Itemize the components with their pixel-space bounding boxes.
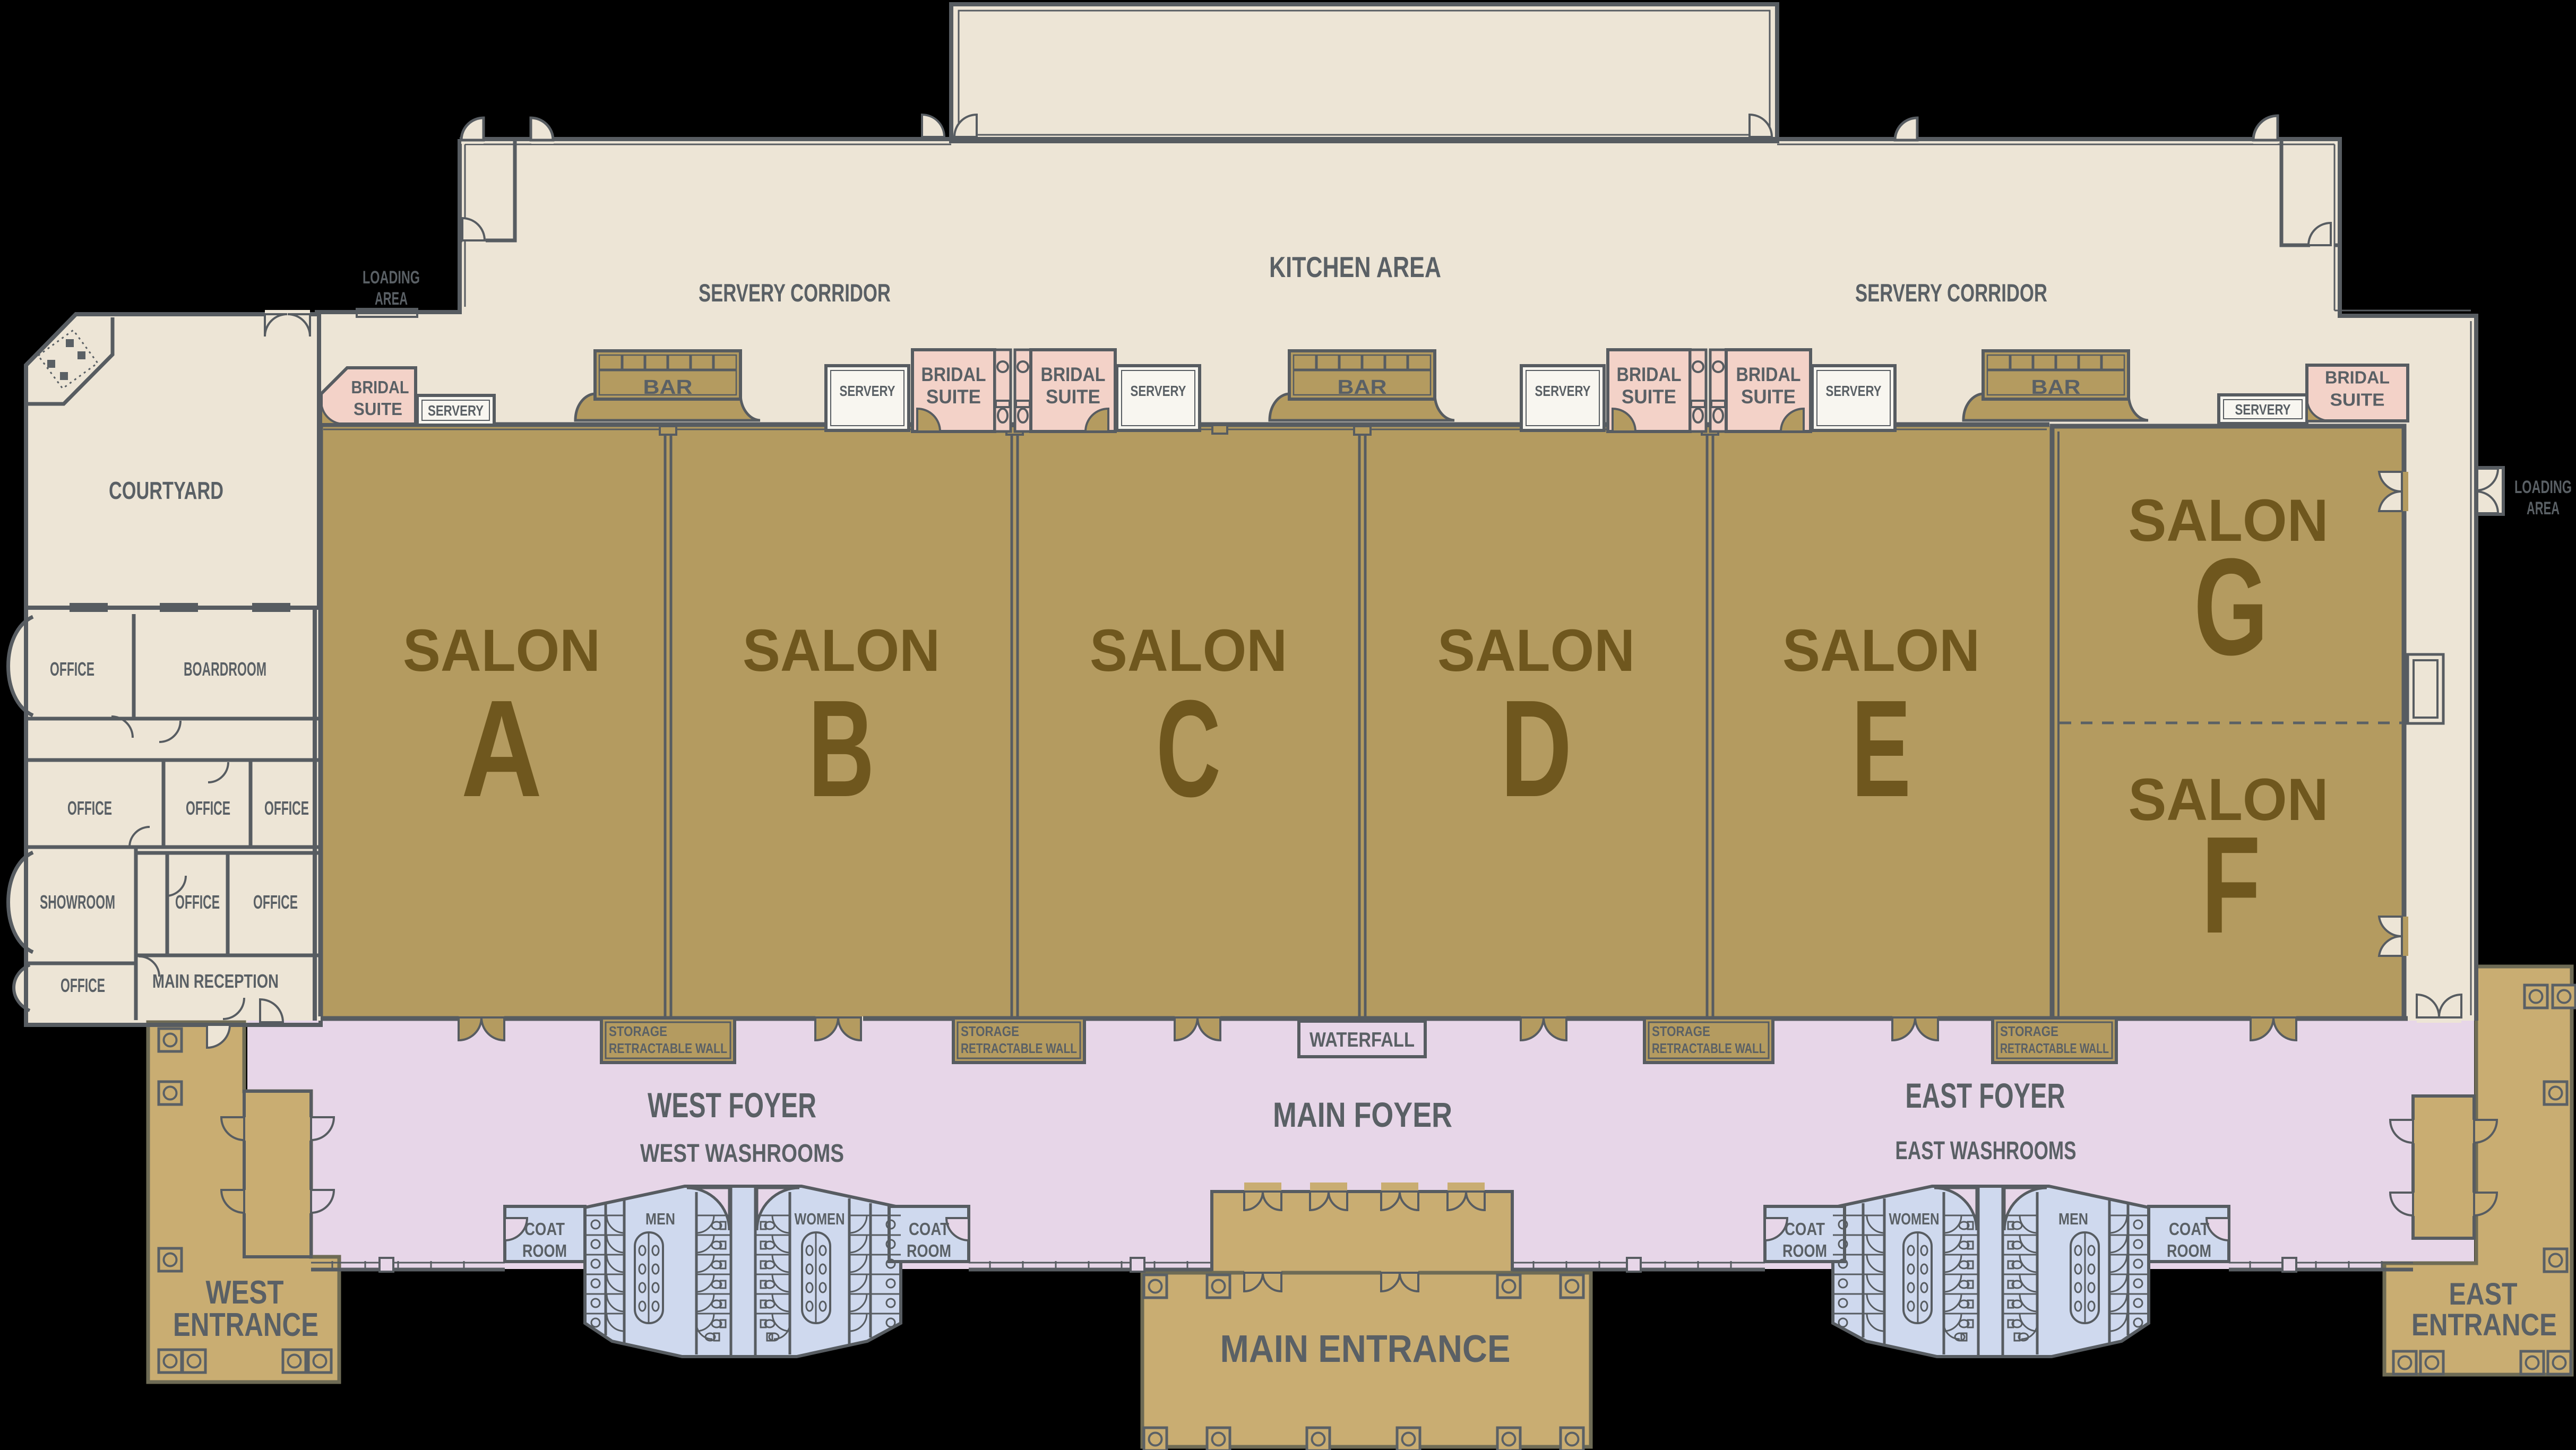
svg-text:BAR: BAR [1338,376,1387,399]
svg-text:SERVERY: SERVERY [2235,401,2291,418]
svg-text:BAR: BAR [2031,376,2081,399]
svg-text:ROOM: ROOM [1782,1241,1827,1261]
svg-text:BRIDAL: BRIDAL [351,377,409,397]
svg-text:SUITE: SUITE [1622,386,1676,408]
svg-text:BRIDAL: BRIDAL [2325,368,2390,387]
svg-text:F: F [2201,808,2261,962]
svg-text:STORAGE: STORAGE [1652,1023,1710,1039]
svg-text:RETRACTABLE WALL: RETRACTABLE WALL [609,1040,727,1056]
svg-text:MEN: MEN [645,1210,675,1228]
svg-text:EAST WASHROOMS: EAST WASHROOMS [1896,1137,2077,1165]
svg-text:STORAGE: STORAGE [2000,1023,2058,1039]
svg-text:ROOM: ROOM [907,1241,951,1261]
svg-text:SERVERY CORRIDOR: SERVERY CORRIDOR [1855,279,2047,307]
svg-text:SUITE: SUITE [1046,386,1100,408]
svg-text:AREA: AREA [2527,498,2560,519]
svg-text:BRIDAL: BRIDAL [1736,364,1801,385]
svg-text:COURTYARD: COURTYARD [109,477,223,504]
svg-text:EAST FOYER: EAST FOYER [1906,1076,2065,1115]
svg-text:SERVERY: SERVERY [1826,383,1882,399]
svg-text:SERVERY: SERVERY [1535,383,1591,399]
svg-text:E: E [1851,672,1911,826]
svg-text:BRIDAL: BRIDAL [1041,364,1106,385]
svg-text:ENTRANCE: ENTRANCE [173,1307,318,1343]
svg-text:SERVERY: SERVERY [1131,383,1186,399]
svg-text:BRIDAL: BRIDAL [921,364,986,385]
svg-text:WEST FOYER: WEST FOYER [648,1085,816,1125]
svg-text:OFFICE: OFFICE [175,891,220,913]
svg-text:BAR: BAR [643,376,693,399]
svg-text:LOADING: LOADING [2514,477,2572,497]
svg-text:OFFICE: OFFICE [61,974,105,996]
svg-text:WATERFALL: WATERFALL [1309,1029,1415,1051]
svg-text:WEST WASHROOMS: WEST WASHROOMS [640,1140,844,1168]
svg-text:SERVERY: SERVERY [428,402,484,419]
svg-text:MAIN FOYER: MAIN FOYER [1273,1095,1452,1134]
svg-text:MAIN RECEPTION: MAIN RECEPTION [152,970,279,992]
svg-text:B: B [808,672,875,826]
svg-text:BOARDROOM: BOARDROOM [184,658,266,680]
svg-text:OFFICE: OFFICE [50,658,94,680]
svg-text:ROOM: ROOM [522,1241,567,1261]
svg-text:MEN: MEN [2058,1210,2088,1228]
svg-text:WEST: WEST [206,1274,284,1311]
svg-text:RETRACTABLE WALL: RETRACTABLE WALL [1652,1040,1765,1056]
svg-text:SUITE: SUITE [354,399,402,419]
svg-text:KITCHEN AREA: KITCHEN AREA [1269,251,1441,283]
svg-text:SHOWROOM: SHOWROOM [40,891,115,913]
svg-text:RETRACTABLE WALL: RETRACTABLE WALL [961,1040,1077,1056]
svg-text:SERVERY: SERVERY [840,383,895,399]
svg-text:C: C [1156,672,1221,826]
svg-text:G: G [2194,530,2268,684]
svg-text:A: A [461,672,542,826]
svg-text:LOADING: LOADING [363,267,420,288]
svg-text:SERVERY CORRIDOR: SERVERY CORRIDOR [699,279,891,307]
svg-text:COAT: COAT [1785,1219,1825,1239]
svg-text:ROOM: ROOM [2167,1241,2211,1261]
svg-text:STORAGE: STORAGE [961,1023,1019,1039]
svg-text:SUITE: SUITE [2330,390,2385,410]
svg-text:D: D [1501,672,1572,826]
svg-text:OFFICE: OFFICE [186,797,230,819]
svg-text:COAT: COAT [909,1219,949,1239]
svg-text:RETRACTABLE WALL: RETRACTABLE WALL [2000,1040,2109,1056]
svg-text:STORAGE: STORAGE [609,1023,667,1039]
svg-text:WOMEN: WOMEN [795,1210,845,1228]
svg-text:BRIDAL: BRIDAL [1617,364,1682,385]
svg-text:EAST: EAST [2449,1277,2518,1311]
svg-text:AREA: AREA [375,289,408,309]
svg-text:OFFICE: OFFICE [253,891,298,913]
svg-text:OFFICE: OFFICE [264,797,309,819]
svg-text:ENTRANCE: ENTRANCE [2411,1308,2557,1342]
svg-text:SUITE: SUITE [926,386,981,408]
svg-text:COAT: COAT [524,1219,565,1239]
svg-text:COAT: COAT [2169,1219,2209,1239]
svg-text:OFFICE: OFFICE [67,797,112,819]
svg-text:MAIN ENTRANCE: MAIN ENTRANCE [1220,1328,1511,1370]
svg-text:WOMEN: WOMEN [1889,1210,1940,1228]
svg-text:SUITE: SUITE [1741,386,1796,408]
